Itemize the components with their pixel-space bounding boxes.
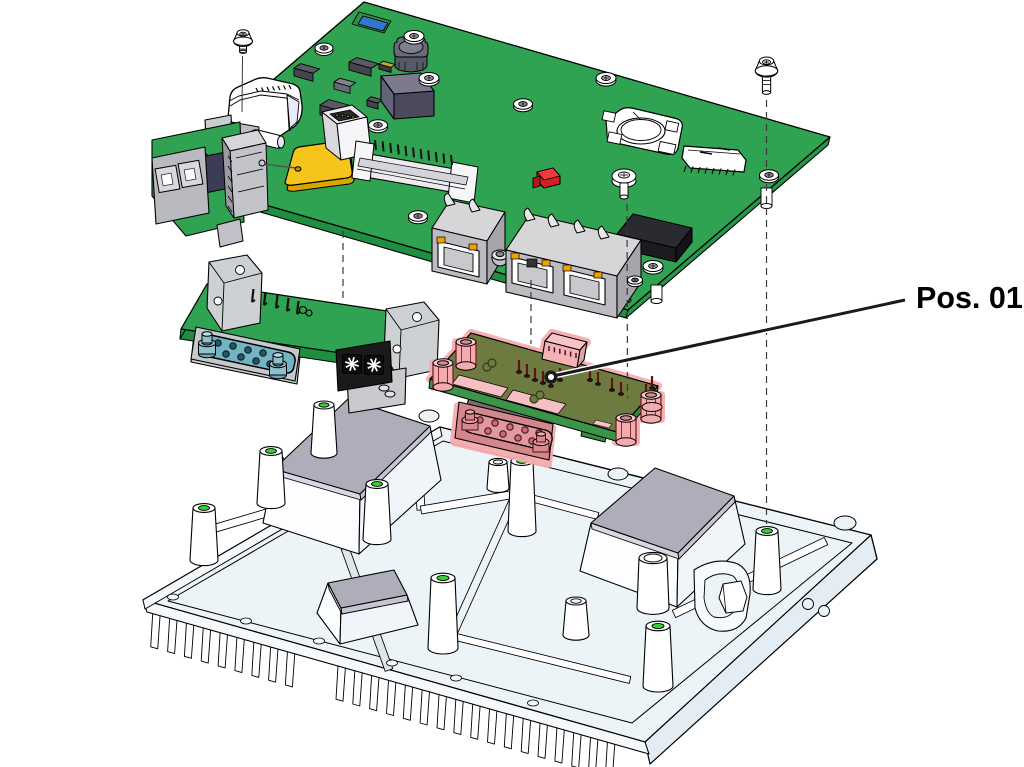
svg-text:Pos. 01: Pos. 01 bbox=[916, 281, 1023, 315]
